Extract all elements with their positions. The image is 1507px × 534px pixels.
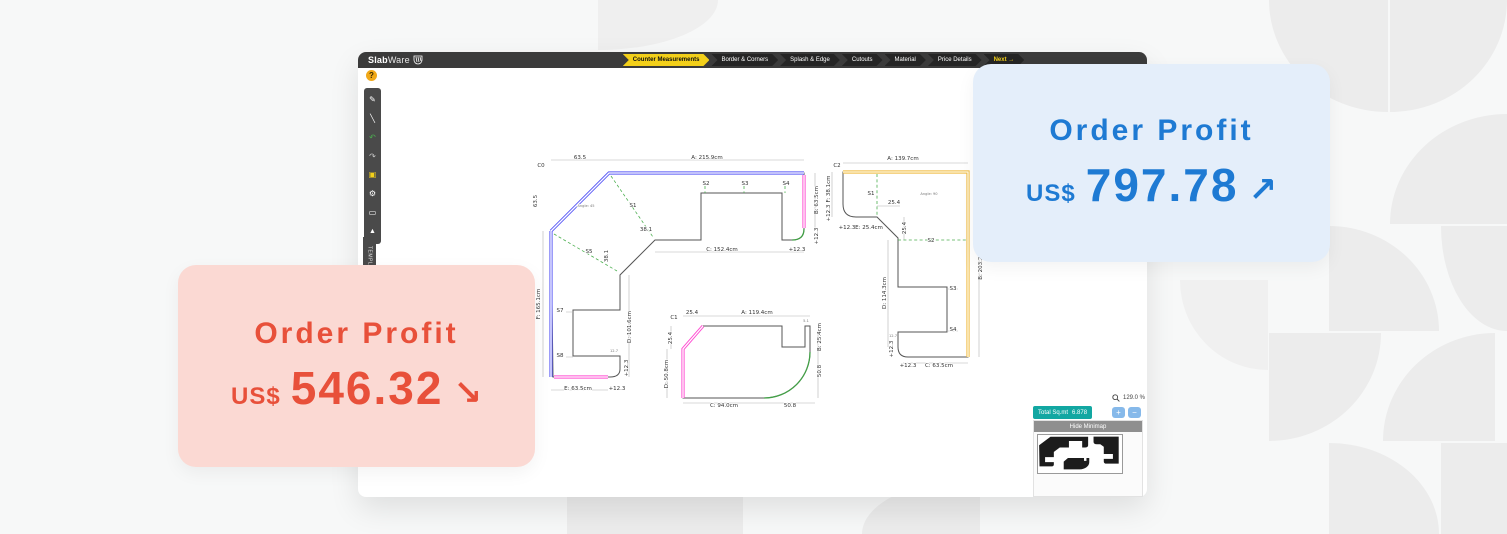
minimap-panel: Hide Minimap (1033, 420, 1143, 497)
logo-text-bold: Slab (368, 55, 388, 65)
dimension-label: +12.3 (624, 359, 630, 376)
bg-tile (1441, 443, 1507, 534)
currency-label: US$ (1026, 180, 1076, 208)
bg-tile (1390, 0, 1507, 112)
dimension-label: 50.8 (784, 403, 797, 409)
zoom-in-button[interactable]: + (1112, 407, 1125, 418)
dimension-label: S3 (742, 181, 749, 187)
dimension-label: E: 25.4cm (855, 225, 883, 231)
minimap-shapes (1038, 435, 1120, 471)
dimension-label: B: 25.4cm (817, 323, 823, 351)
dimension-label: S1 (630, 203, 637, 209)
tab-splash-edge[interactable]: Splash & Edge (780, 54, 840, 66)
dimension-label: 25.4 (668, 331, 674, 344)
dimension-label: S7 (557, 308, 564, 314)
dimension-label: C: 152.4cm (706, 247, 738, 253)
minimap-viewport[interactable] (1037, 434, 1123, 474)
dimension-label: S2 (928, 238, 935, 244)
dimension-label: +12.3 (609, 386, 626, 392)
tab-price-details[interactable]: Price Details (928, 54, 982, 66)
dimension-label: B: 63.5cm (814, 186, 820, 214)
bg-tile (1269, 333, 1381, 441)
dimension-label: +12.3 (789, 247, 806, 253)
dimension-label: 25.4 (686, 310, 699, 316)
hide-minimap-button[interactable]: Hide Minimap (1034, 421, 1142, 432)
dimension-label: C1 (670, 315, 677, 321)
bg-tile (1383, 333, 1495, 441)
dimension-label: Angle: 45 (577, 204, 594, 208)
dimension-label: A: 139.7cm (887, 156, 918, 162)
dimension-label: A: 119.4cm (741, 310, 772, 316)
logo-text-light: Ware (388, 55, 410, 65)
bg-tile (1329, 443, 1439, 534)
arrow-down-right-icon: ↘ (453, 373, 482, 413)
bg-tile (598, 0, 718, 50)
dimension-label: C0 (537, 163, 545, 169)
dimension-label: 12.7 (889, 334, 897, 338)
dimension-label: +12.3 (839, 225, 856, 231)
dimension-label: F: 165.1cm (536, 289, 542, 319)
dimension-label: 25.4 (902, 221, 908, 234)
dimension-label: 63.5 (533, 194, 539, 207)
dimension-label: +12.3 (826, 204, 832, 221)
bg-tile (1390, 114, 1507, 224)
order-profit-card-low: Order Profit US$ 546.32 ↘ (178, 265, 535, 467)
bg-tile (1329, 226, 1439, 331)
dimension-label: 50.8 (817, 364, 823, 377)
dimension-label: 63.5 (574, 155, 587, 161)
order-profit-card-high: Order Profit US$ 797.78 ↗ (973, 64, 1330, 262)
total-sqmt-value: 6.878 (1072, 410, 1087, 416)
dimension-label: Angle: 90 (920, 192, 938, 196)
dimension-label: C: 63.5cm (925, 363, 953, 369)
tab-counter-measurements[interactable]: Counter Measurements (623, 54, 710, 66)
bg-tile (1441, 226, 1507, 331)
bg-tile (1180, 280, 1268, 370)
dimension-label: A: 215.9cm (691, 155, 722, 161)
dimension-label: +12.3 (814, 227, 820, 244)
dimension-label: S1 (868, 191, 875, 197)
dimension-label: S4 (783, 181, 790, 187)
arrow-up-right-icon: ↗ (1248, 170, 1277, 210)
slabware-logo[interactable]: SlabWare (368, 55, 423, 65)
order-profit-title: Order Profit (254, 317, 458, 351)
dimension-label: F: 38.1cm (826, 176, 832, 203)
dimension-label: D: 50.8cm (664, 360, 670, 388)
dimension-label: C: 94.0cm (710, 403, 738, 409)
dimension-label: +12.3 (900, 363, 917, 369)
dimension-label: D: 114.3cm (882, 277, 888, 309)
slabware-logo-icon (413, 55, 423, 65)
zoom-out-button[interactable]: − (1128, 407, 1141, 418)
dimension-label: +12.3 (889, 340, 895, 357)
dimension-label: C2 (833, 163, 840, 169)
dimension-label: 25.4 (888, 200, 901, 206)
tab-cutouts[interactable]: Cutouts (842, 54, 883, 66)
dimension-label: S8 (557, 353, 564, 359)
total-sqmt-badge: Total Sq.mt 6.878 (1033, 406, 1092, 419)
dimension-label: S4 (950, 327, 957, 333)
tab-border-corners[interactable]: Border & Corners (711, 54, 778, 66)
tab-material[interactable]: Material (885, 54, 926, 66)
dimension-label: 38.1 (604, 250, 610, 262)
dimension-label: 38.1 (640, 227, 652, 233)
currency-label: US$ (231, 383, 281, 411)
dimension-label: S2 (703, 181, 710, 187)
dimension-label: E: 63.5cm (564, 386, 592, 392)
dimension-label: 12.7 (610, 349, 618, 353)
profit-amount: 797.78 (1086, 158, 1239, 212)
wizard-steps-nav: Counter Measurements Border & Corners Sp… (623, 54, 1024, 66)
total-sqmt-label: Total Sq.mt (1038, 410, 1068, 416)
order-profit-title: Order Profit (1049, 114, 1253, 148)
profit-amount: 546.32 (291, 361, 444, 415)
dimension-label: 5.1 (803, 319, 809, 323)
dimension-label: D: 101.6cm (627, 311, 633, 343)
dimension-label: S5 (586, 249, 593, 255)
dimension-label: S3 (950, 286, 957, 292)
